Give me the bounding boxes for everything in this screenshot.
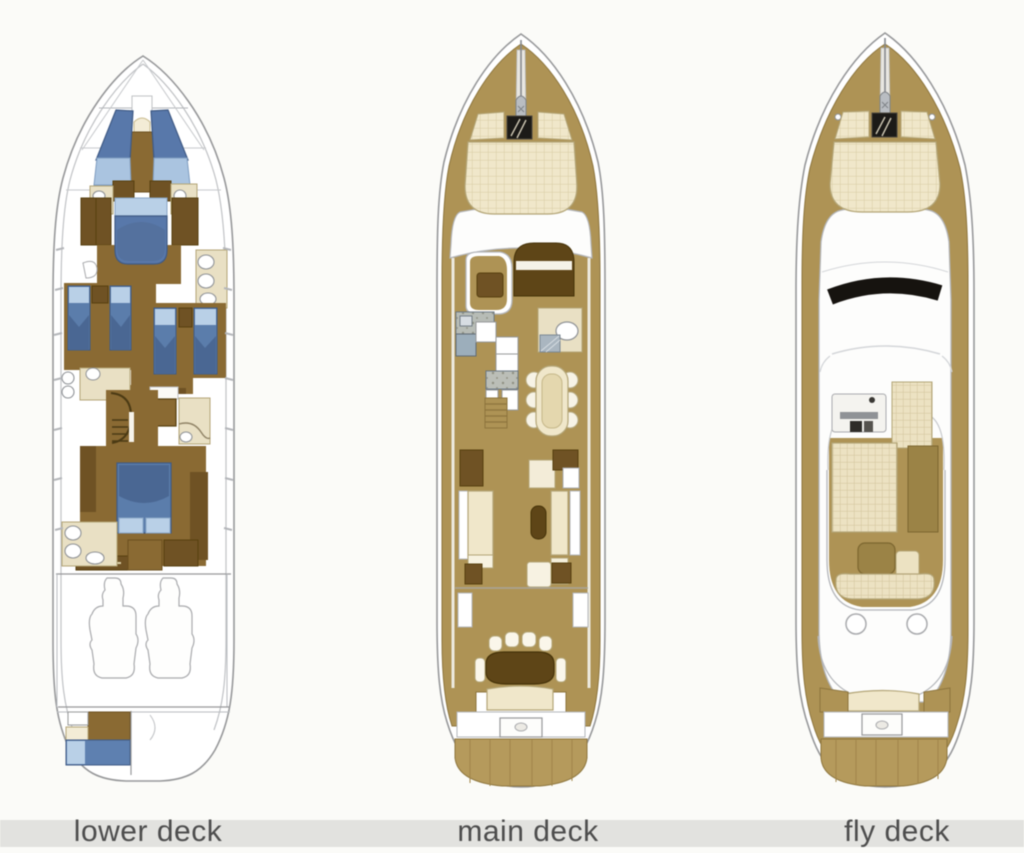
svg-text:main deck: main deck <box>457 815 599 848</box>
svg-text:lower deck: lower deck <box>74 815 223 848</box>
svg-text:fly deck: fly deck <box>844 815 950 848</box>
